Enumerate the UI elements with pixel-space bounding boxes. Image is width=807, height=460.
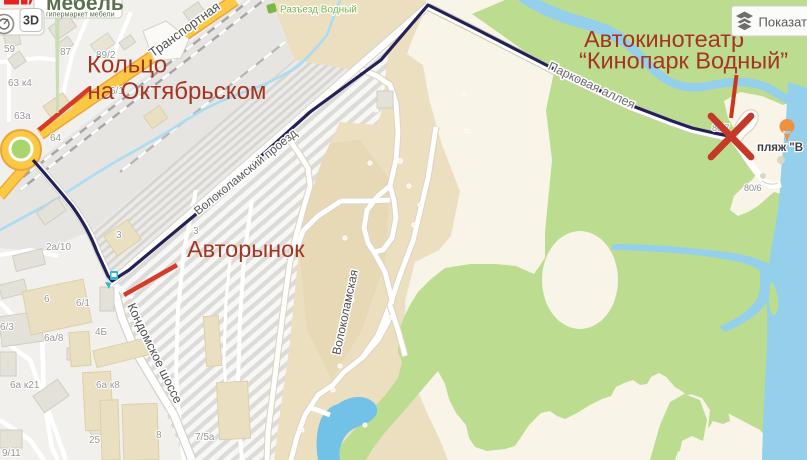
- svg-text:Авторынок: Авторынок: [187, 236, 305, 262]
- svg-text:6/1: 6/1: [76, 298, 90, 309]
- svg-text:64: 64: [50, 133, 62, 144]
- svg-text:“Кинопарк Водный”: “Кинопарк Водный”: [579, 48, 788, 74]
- svg-text:63а: 63а: [14, 111, 31, 122]
- svg-text:6а к8: 6а к8: [96, 380, 120, 391]
- svg-text:на Октябрьском: на Октябрьском: [88, 78, 267, 105]
- svg-text:59: 59: [4, 44, 16, 55]
- svg-text:Кольцо: Кольцо: [87, 52, 167, 79]
- svg-text:80/6: 80/6: [744, 183, 762, 193]
- svg-text:гипермаркет мебели: гипермаркет мебели: [46, 10, 115, 19]
- svg-text:2а/10: 2а/10: [46, 242, 71, 253]
- svg-text:4Б: 4Б: [95, 327, 108, 338]
- svg-text:7/5а: 7/5а: [195, 432, 215, 443]
- svg-text:6: 6: [44, 294, 50, 305]
- svg-text:9/11: 9/11: [2, 448, 21, 459]
- svg-text:8: 8: [156, 430, 162, 441]
- svg-text:6а/8: 6а/8: [44, 333, 64, 344]
- svg-text:6/3: 6/3: [0, 322, 14, 333]
- svg-text:6а к21: 6а к21: [10, 380, 40, 391]
- svg-text:25: 25: [89, 435, 101, 446]
- svg-text:87: 87: [60, 47, 72, 58]
- svg-text:Разъезд Водный: Разъезд Водный: [280, 5, 357, 16]
- svg-text:пляж "В: пляж "В: [757, 142, 803, 154]
- svg-text:Показать: Показать: [759, 15, 807, 30]
- svg-text:3: 3: [116, 230, 122, 241]
- svg-text:63 к4: 63 к4: [8, 78, 32, 89]
- svg-text:3D: 3D: [23, 14, 39, 28]
